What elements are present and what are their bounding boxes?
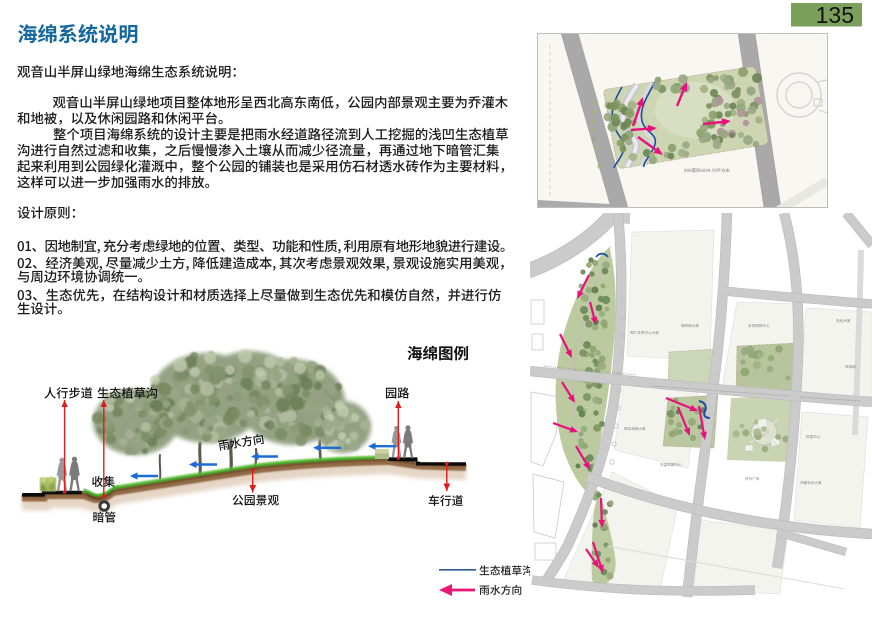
svg-text:135: 135 (816, 2, 854, 28)
